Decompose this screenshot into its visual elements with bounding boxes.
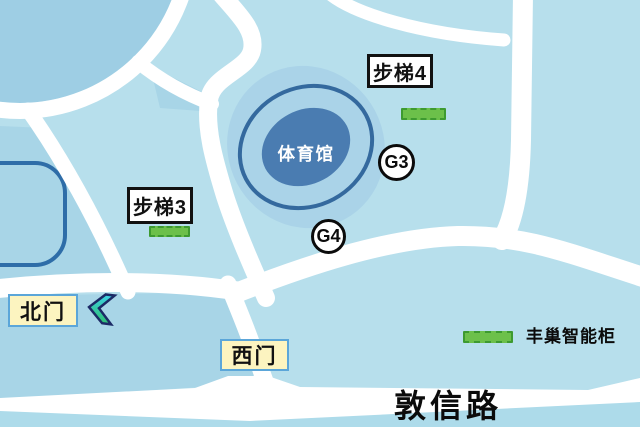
gate-marker-g4: G4 <box>311 219 346 254</box>
stadium-label: 体育馆 <box>245 141 367 166</box>
venue-map: 体育馆 步梯4 步梯3 G3 G4 北门 西门 丰巢智能柜 敦信路 <box>0 0 640 427</box>
stairs-3-marker <box>149 226 190 237</box>
locker-legend-label: 丰巢智能柜 <box>526 322 616 347</box>
pond-outline <box>0 163 65 265</box>
gate-marker-g3: G3 <box>378 144 415 181</box>
street-name-label: 敦信路 <box>394 381 502 427</box>
north-gate-label: 北门 <box>8 294 78 327</box>
stairs-4-label: 步梯4 <box>367 54 433 88</box>
road-sweep-right <box>236 236 640 293</box>
road-top-right-diagonal <box>330 0 504 40</box>
stairs-4-marker <box>401 108 446 120</box>
west-gate-label: 西门 <box>220 339 289 371</box>
road-horizontal <box>0 283 238 292</box>
map-base-layer <box>0 0 640 427</box>
locker-legend-marker <box>463 331 513 343</box>
stairs-3-label: 步梯3 <box>127 187 193 224</box>
